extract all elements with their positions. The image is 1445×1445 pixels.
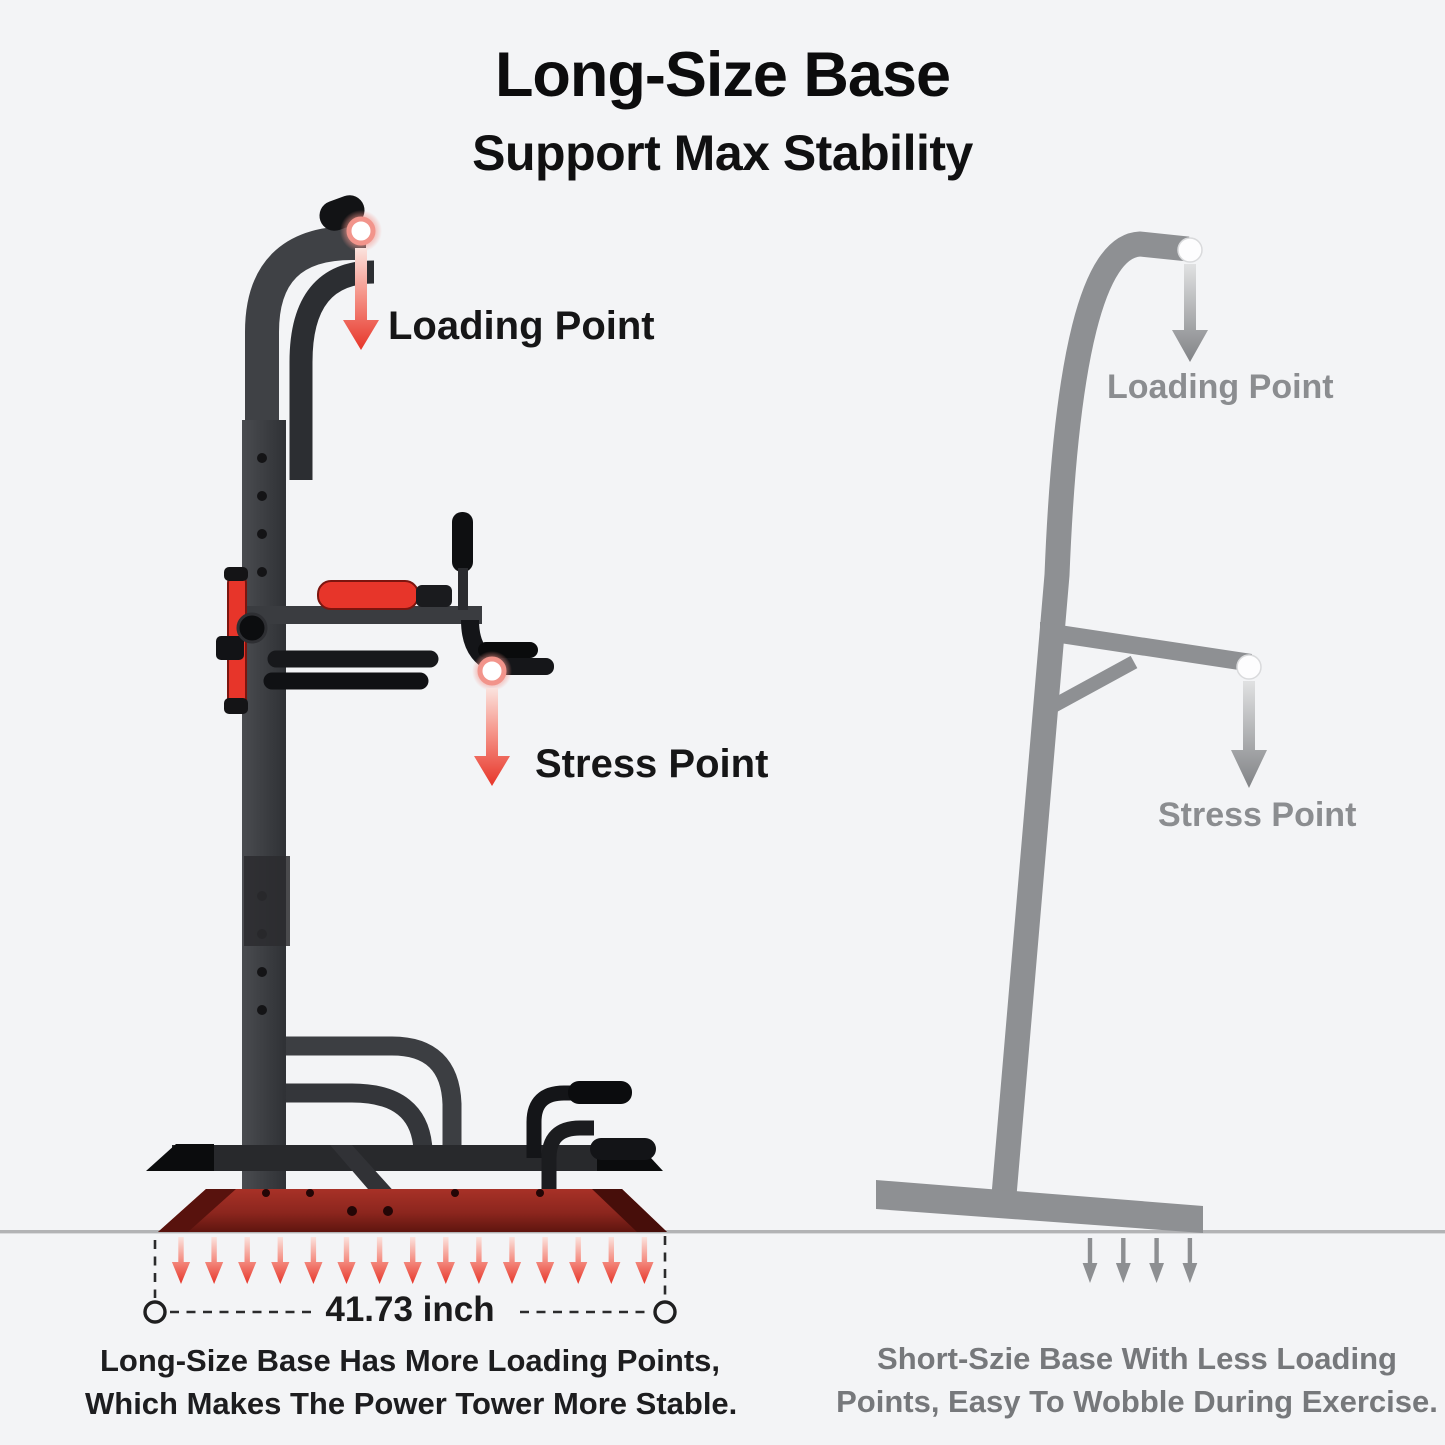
floor-arrow-icon <box>437 1237 455 1284</box>
floor-arrow-icon <box>602 1237 620 1284</box>
floor-arrow-icon <box>404 1237 422 1284</box>
caption-left: Long-Size Base Has More Loading Points, … <box>85 1340 735 1426</box>
caption-left-line1: Long-Size Base Has More Loading Points, <box>85 1340 735 1383</box>
caption-right-line1: Short-Szie Base With Less Loading <box>817 1338 1445 1381</box>
floor-arrow-icon <box>635 1237 653 1284</box>
page-subtitle: Support Max Stability <box>0 127 1445 180</box>
cushion-mount <box>416 585 452 607</box>
right-floor-arrows <box>1083 1238 1198 1283</box>
floor-arrow-icon <box>172 1237 190 1284</box>
stress-point-label-right: Stress Point <box>1158 798 1356 834</box>
down-arrow-icon-right-loading <box>1172 264 1208 362</box>
left-floor-arrows <box>172 1237 654 1284</box>
page-title: Long-Size Base <box>0 42 1445 108</box>
dip-handle-stem <box>458 568 468 610</box>
measurement-endpoint-right <box>655 1302 675 1322</box>
post-bracket <box>244 856 290 946</box>
page-root: Long-Size Base Support Max Stability Loa… <box>0 0 1445 1445</box>
backrest-cap-top <box>224 567 248 581</box>
loading-point-marker-left <box>349 219 373 243</box>
adjuster-knob <box>238 614 266 642</box>
pushup-grip-lower <box>590 1138 656 1160</box>
dip-seat-cushion <box>318 581 418 609</box>
measurement-endpoint-left <box>145 1302 165 1322</box>
bottom-frame-bar <box>172 1145 640 1171</box>
stress-point-marker-left <box>480 659 504 683</box>
comparison-illustration <box>0 0 1445 1445</box>
floor-arrow-icon <box>304 1237 322 1284</box>
loading-point-label-right: Loading Point <box>1107 370 1334 406</box>
floor-arrow-icon <box>536 1237 554 1284</box>
stress-point-marker-right <box>1237 655 1261 679</box>
down-arrow-icon-left-stress <box>474 688 510 786</box>
down-arrow-icon-right-stress <box>1231 681 1267 788</box>
floor-arrow-icon <box>238 1237 256 1284</box>
backrest-clamp <box>216 636 244 660</box>
floor-arrow-icon <box>337 1237 355 1284</box>
floor-arrow-icon <box>205 1237 223 1284</box>
floor-arrow-icon <box>1083 1238 1098 1283</box>
floor-arrow-icon <box>271 1237 289 1284</box>
floor-arrow-icon <box>503 1237 521 1284</box>
loading-point-marker-right <box>1178 238 1202 262</box>
floor-arrow-icon <box>1183 1238 1198 1283</box>
frame-foot-left <box>146 1144 214 1171</box>
caption-right-line2: Points, Easy To Wobble During Exercise. <box>817 1381 1445 1424</box>
stress-point-label-left: Stress Point <box>535 743 768 785</box>
floor-arrow-icon <box>569 1237 587 1284</box>
silhouette-arm <box>1040 622 1252 672</box>
dip-handle-vertical <box>452 512 473 572</box>
floor-arrow-icon <box>470 1237 488 1284</box>
floor-arrow-icon <box>1149 1238 1164 1283</box>
base-width-measurement: 41.73 inch <box>260 1292 560 1329</box>
caption-left-line2: Which Makes The Power Tower More Stable. <box>85 1383 735 1426</box>
backrest-cap-bottom <box>224 698 248 714</box>
floor-arrow-icon <box>1116 1238 1131 1283</box>
loading-point-label-left: Loading Point <box>388 305 655 347</box>
silhouette-base <box>876 1180 1203 1233</box>
pushup-grip-upper <box>568 1081 632 1104</box>
caption-right: Short-Szie Base With Less Loading Points… <box>817 1338 1445 1424</box>
long-base-rail <box>158 1189 667 1232</box>
floor-arrow-icon <box>371 1237 389 1284</box>
